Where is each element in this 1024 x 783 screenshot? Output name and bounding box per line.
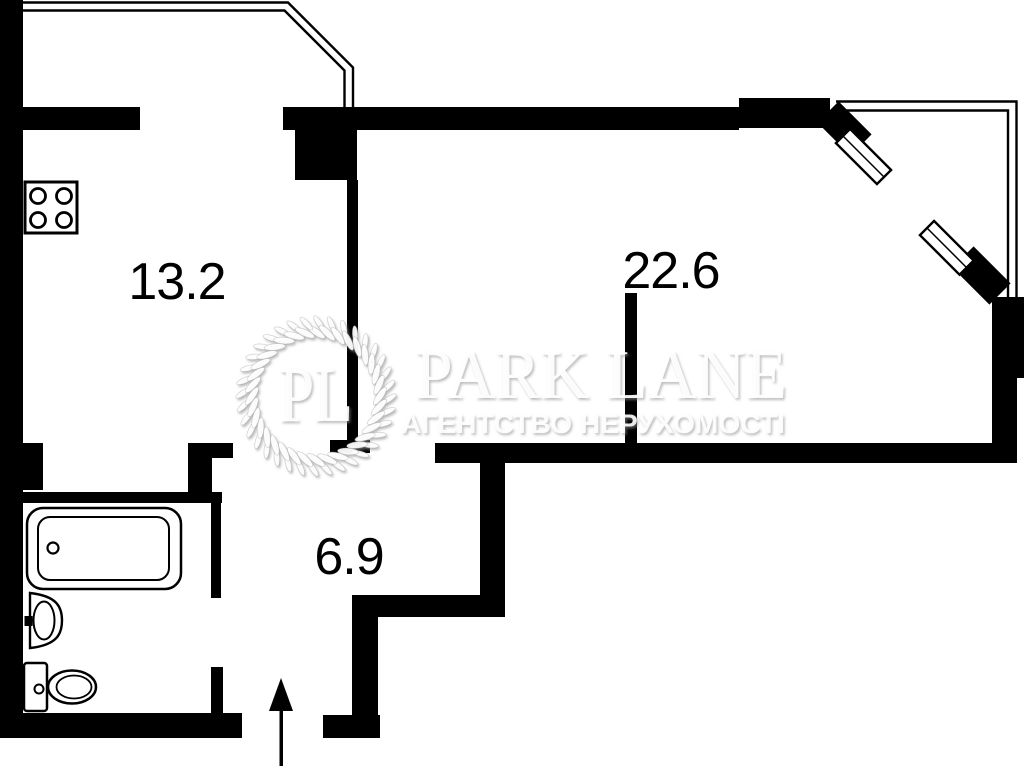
bathtub-icon: [27, 508, 181, 589]
wall-segment: [435, 443, 1017, 463]
wall-segment: [0, 443, 43, 490]
wall-segment: [992, 297, 1024, 378]
wall-segment: [211, 667, 223, 713]
window-icon: [920, 221, 974, 275]
wall-segment: [23, 492, 222, 503]
kitchen-bay-inner-line: [23, 11, 345, 108]
watermark-brand: PARK LANE: [415, 337, 787, 414]
wall-segment: [188, 443, 233, 458]
wall-segment: [739, 98, 830, 128]
kitchen-area-label: 13.2: [128, 253, 225, 311]
wall-segment: [352, 617, 378, 717]
wall-segment: [323, 715, 380, 738]
kitchen-bay-outer-line: [23, 3, 353, 108]
wall-segment: [295, 129, 357, 180]
hallway-area-label: 6.9: [314, 528, 383, 586]
wall-segment: [211, 502, 221, 598]
toilet-icon: [24, 663, 96, 711]
watermark-tagline: АГЕНТСТВО НЕРУХОМОСТІ: [401, 409, 785, 439]
entrance-arrow-icon: [269, 678, 293, 766]
stove-icon: [25, 182, 77, 233]
living-room-area-label: 22.6: [622, 242, 719, 300]
bay-windows: [836, 129, 974, 275]
sink-icon: [25, 593, 63, 648]
wall-segment: [0, 713, 242, 738]
floor-plan: 13.2 22.6 6.9: [0, 0, 1024, 783]
wall-segment: [992, 378, 1017, 463]
watermark-monogram: PL: [279, 351, 353, 438]
wall-segment: [0, 0, 23, 738]
wall-segment: [23, 107, 140, 130]
wall-segment: [480, 443, 505, 617]
faucet-icon: [25, 616, 33, 626]
wall-segment: [283, 107, 739, 130]
